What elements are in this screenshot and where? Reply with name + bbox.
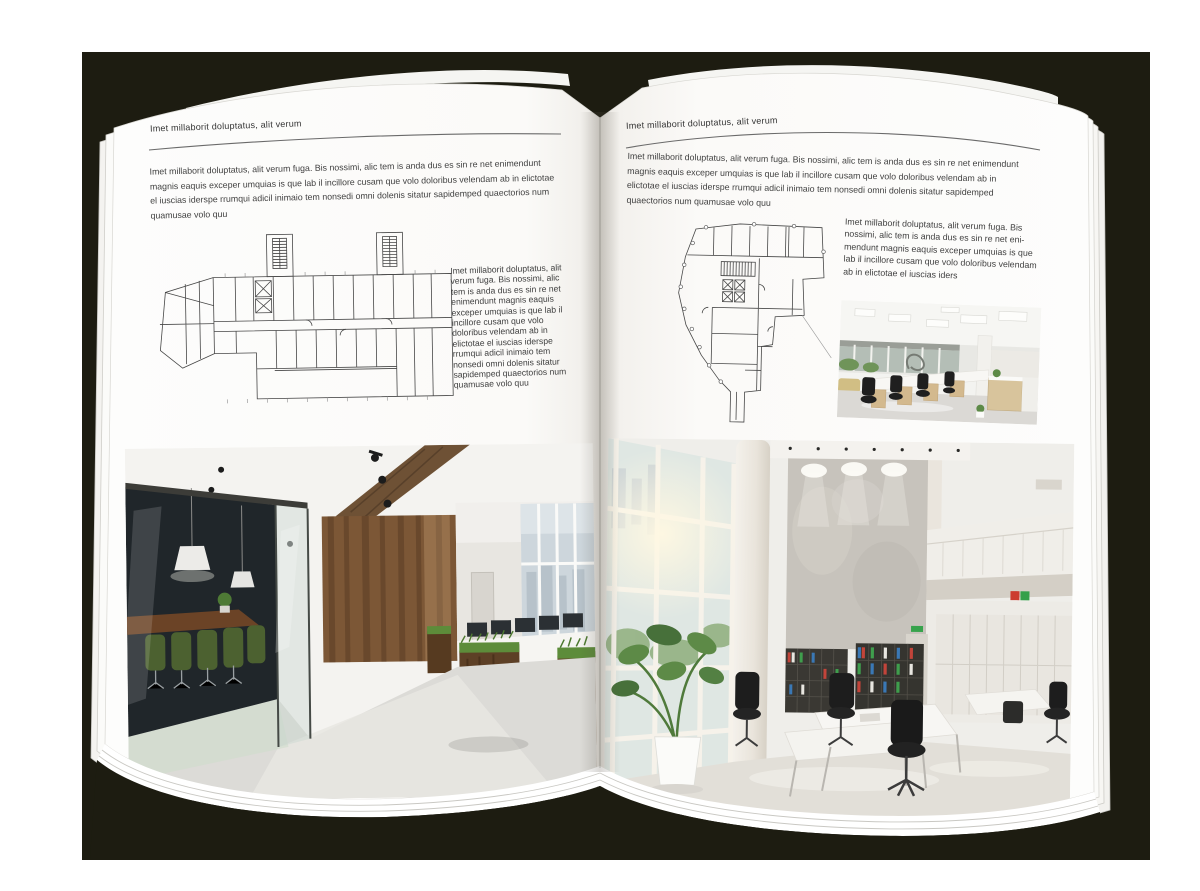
left-floor-plan xyxy=(154,227,457,425)
office-photo-small xyxy=(837,300,1041,425)
spread-content: Imet millaborit doluptatus, alit verum I… xyxy=(0,0,1200,891)
right-page-caption: Imet millaborit doluptatus, alit verum f… xyxy=(843,215,1047,284)
floor-plan-drawing-left xyxy=(154,227,457,420)
brochure-mockup-canvas: Imet millaborit doluptatus, alit verum I… xyxy=(0,0,1200,891)
right-page-header: Imet millaborit doluptatus, alit verum xyxy=(626,115,778,131)
floor-plan-drawing-right xyxy=(640,212,842,430)
right-floor-plan xyxy=(640,212,843,435)
wood-cabinet xyxy=(987,378,1022,411)
left-page-intro: Imet millaborit doluptatus, alit verum f… xyxy=(149,155,558,222)
concrete-wall xyxy=(786,458,928,650)
left-page-caption: Imet millaborit doluptatus, alit verum f… xyxy=(450,262,570,390)
office-photo-dark-wood xyxy=(125,443,597,801)
column xyxy=(732,440,770,776)
safety-sign-green xyxy=(1020,591,1029,600)
right-page-intro: Imet millaborit doluptatus, alit verum f… xyxy=(626,149,1019,215)
right-page-photo xyxy=(604,438,1075,824)
glass-meeting-room xyxy=(125,481,311,749)
exit-sign xyxy=(911,626,923,632)
office-photo-atrium xyxy=(604,438,1075,819)
right-page-small-photo xyxy=(837,300,1042,430)
left-page-header: Imet millaborit doluptatus, alit verum xyxy=(150,118,302,133)
safety-sign-red xyxy=(1010,591,1019,600)
left-page-photo xyxy=(125,443,597,806)
